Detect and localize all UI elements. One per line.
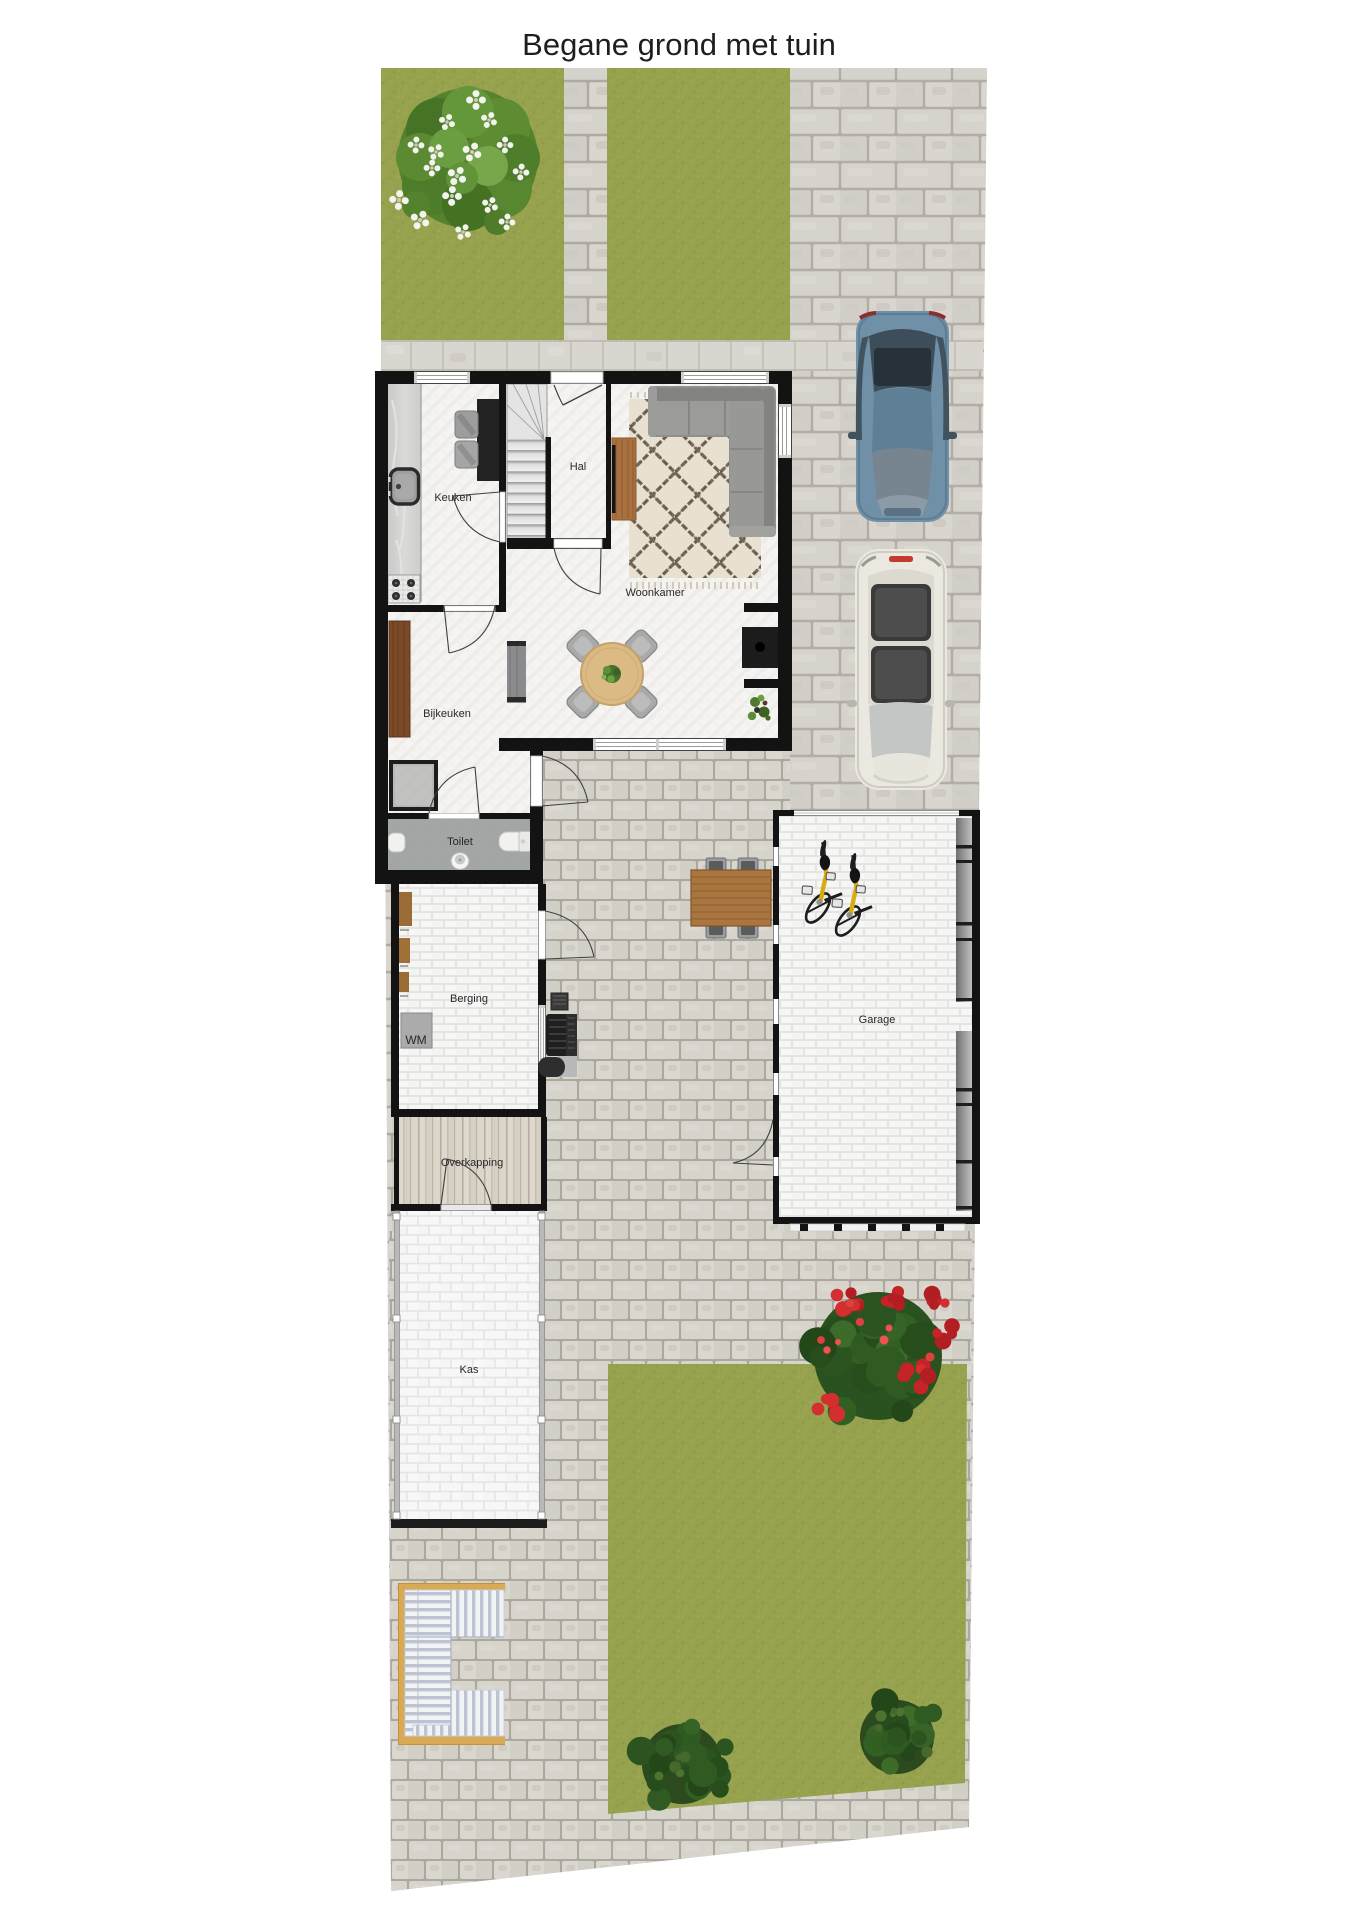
svg-text:Hal: Hal bbox=[570, 461, 587, 473]
svg-text:Keuken: Keuken bbox=[434, 492, 471, 504]
svg-text:Kas: Kas bbox=[460, 1364, 479, 1376]
svg-text:Woonkamer: Woonkamer bbox=[625, 587, 684, 599]
svg-text:Berging: Berging bbox=[450, 993, 488, 1005]
svg-text:Toilet: Toilet bbox=[447, 836, 473, 848]
svg-text:Begane grond met tuin: Begane grond met tuin bbox=[522, 27, 836, 62]
svg-text:WM: WM bbox=[405, 1033, 426, 1047]
svg-text:Garage: Garage bbox=[859, 1014, 896, 1026]
svg-text:Overkapping: Overkapping bbox=[441, 1157, 503, 1169]
svg-text:Bijkeuken: Bijkeuken bbox=[423, 708, 471, 720]
